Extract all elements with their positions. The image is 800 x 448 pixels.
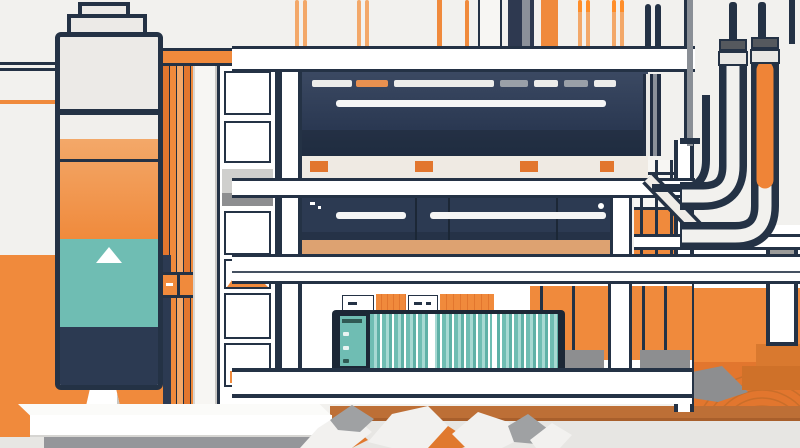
- edge-rod: [789, 0, 795, 44]
- right-beam: [634, 234, 800, 250]
- hanging-rod-orange-tipped: [578, 0, 582, 50]
- window-panel: [224, 211, 271, 255]
- pipe-cap: [752, 38, 778, 48]
- rack-post-left: [278, 48, 302, 400]
- platform-front: [30, 415, 332, 437]
- vent-dash: [534, 80, 558, 87]
- floor-orange-chip: [310, 161, 328, 172]
- shelf2-floor-tan: [302, 240, 610, 254]
- beam-inner-line: [232, 271, 800, 273]
- battery-seg-white-top: [60, 37, 158, 109]
- battery-thin-line: [60, 159, 158, 162]
- pipe-collar: [751, 50, 779, 63]
- control-box-mark: [348, 302, 357, 305]
- floor-shadow-wedge: [692, 366, 748, 402]
- battery-module-bank: [332, 310, 565, 372]
- window-panel: [224, 121, 271, 163]
- control-box-mark: [426, 302, 431, 305]
- hanging-rod-orange-tipped: [612, 0, 616, 48]
- hanging-rod-orange-tipped: [620, 0, 624, 48]
- pipe-rod: [729, 2, 737, 42]
- shelf3-mid-post: [608, 284, 632, 372]
- module-divider: [430, 314, 435, 368]
- vent-dash-gray: [500, 80, 528, 87]
- illustration-canvas: [0, 0, 800, 448]
- room-step-lower: [742, 366, 800, 390]
- floor-orange-chip: [520, 161, 538, 172]
- rack-top-beam: [232, 46, 695, 72]
- vent-dash-orange: [356, 80, 388, 87]
- battery-line-navy: [0, 62, 56, 65]
- conduit-valve-box: [158, 272, 198, 298]
- battery-body: [55, 32, 163, 390]
- shelf3-frame-line: [642, 286, 645, 360]
- module-led: [343, 346, 349, 350]
- rack-bottom-beam: [232, 368, 692, 404]
- control-box-mark: [414, 302, 422, 305]
- orange-lintel: [160, 48, 232, 66]
- module-divider: [492, 314, 497, 368]
- cabinet-white-stripe: [336, 100, 606, 107]
- floor-orange-chip: [600, 161, 614, 172]
- cabinet-top: [302, 72, 648, 156]
- pipe-right-core: [682, 50, 765, 236]
- indicator-dot: [598, 203, 604, 209]
- vent-dash: [312, 80, 352, 87]
- platform-base: [44, 437, 322, 448]
- shelf3-gray-floor: [640, 350, 690, 368]
- pedestal-stem: [86, 388, 120, 406]
- rack-beam-2: [232, 178, 695, 198]
- shelf1-floor: [302, 156, 648, 178]
- beam-inner-line: [232, 394, 692, 398]
- tiny-mark: [318, 206, 321, 209]
- frame-line-vertical: [690, 0, 693, 145]
- orange-brown-band: [330, 406, 800, 421]
- module-led: [343, 332, 349, 336]
- cabinet-end-block: [643, 74, 661, 156]
- end-block-gray-stripe: [653, 74, 657, 156]
- pipe-collar: [719, 52, 747, 65]
- pipe-cap: [720, 40, 746, 50]
- end-block-white-stripe: [646, 74, 650, 156]
- valve-divider: [177, 275, 180, 295]
- hanging-rod-orange-tipped: [586, 0, 590, 50]
- module-side-panel: [340, 316, 366, 366]
- module-led: [343, 359, 349, 363]
- battery-seg-navy-base: [60, 327, 158, 385]
- window-panel-column: [217, 60, 278, 410]
- cabinet-middle: [302, 198, 610, 240]
- floor-orange-chip: [415, 161, 433, 172]
- module-slats: [370, 314, 558, 368]
- rack-beam-3: [232, 254, 800, 284]
- tiny-mark: [310, 202, 315, 205]
- cabinet-shadow: [302, 130, 648, 156]
- frame-line-vertical: [684, 0, 687, 145]
- battery-seg-orange: [60, 139, 158, 239]
- hanging-rod-navy: [655, 4, 661, 52]
- cabinet-shadow: [302, 232, 610, 240]
- hanging-panel-white: [478, 0, 502, 50]
- cabinet-white-stripe: [430, 212, 606, 219]
- window-panel: [224, 293, 271, 339]
- valve-mark: [166, 283, 173, 286]
- vent-dash: [594, 80, 616, 87]
- shelf3-frame-line: [572, 286, 575, 360]
- pipe-rod: [758, 2, 766, 40]
- module-header-stripe: [342, 319, 362, 323]
- vent-dash: [394, 80, 494, 87]
- cabinet-white-stripe: [336, 212, 406, 219]
- shelf3-frame-line: [664, 286, 667, 360]
- vent-dash-gray: [564, 80, 588, 87]
- battery-seg-white-2: [60, 115, 158, 139]
- hanging-rod-navy: [645, 4, 651, 52]
- battery-charge-triangle: [96, 247, 122, 263]
- battery-line-navy: [0, 68, 56, 71]
- window-panel: [224, 71, 271, 115]
- white-duct: [193, 64, 217, 410]
